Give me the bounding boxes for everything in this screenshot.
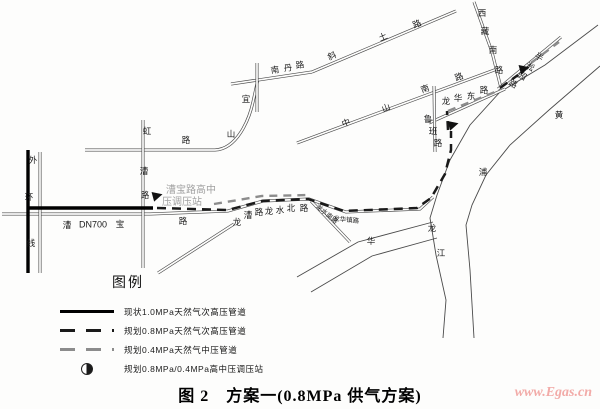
planned-04-pipeline-swatch xyxy=(60,348,114,351)
nandan-road-core xyxy=(231,72,312,84)
longhua-east-road-core xyxy=(429,89,505,123)
legend-row-planned-08: 规划0.8MPa天然气次高压管道 xyxy=(60,321,350,340)
regulator-station-symbol xyxy=(60,363,114,375)
figure-page: 外环线虹漕路宜山路南丹路斜土路中山南路漕DN700宝路龙漕路龙水北路龙水南路龙华… xyxy=(0,0,600,409)
legend-label: 现状1.0MPa天然气次高压管道 xyxy=(124,306,246,318)
planned-0.4mpa-pipeline xyxy=(531,42,559,63)
planned-08-pipeline-swatch xyxy=(60,329,114,332)
luban-road-core xyxy=(434,86,435,152)
figure-caption: 图 2 方案一(0.8MPa 供气方案) xyxy=(0,382,600,406)
huangpu-river-bank-1 xyxy=(430,25,598,338)
caobao-road-station xyxy=(152,189,164,201)
watermark: www.Egas.cn xyxy=(515,385,592,401)
legend-label: 规划0.4MPa天然气中压管道 xyxy=(124,344,237,356)
luban-road-station xyxy=(448,118,460,130)
legend-row-station: 规划0.8MPa/0.4MPa高中压调压站 xyxy=(60,359,350,378)
legend-label: 规划0.8MPa/0.4MPa高中压调压站 xyxy=(124,363,263,375)
southwest-branch-road-core xyxy=(158,224,234,273)
yishan-road-core xyxy=(85,79,258,150)
bansongyuan-road-core xyxy=(498,37,561,89)
xietu-road-core xyxy=(312,11,456,72)
existing-pipeline-swatch xyxy=(60,310,114,313)
legend-label: 规划0.8MPa天然气次高压管道 xyxy=(124,325,246,337)
legend-row-existing: 现状1.0MPa天然气次高压管道 xyxy=(60,302,350,321)
planned-0.8mpa-pipeline xyxy=(447,111,448,130)
yishan-road xyxy=(85,79,258,150)
legend-heading: 图例 xyxy=(112,272,350,292)
creek-bank-1 xyxy=(297,222,433,277)
legend-row-planned-04: 规划0.4MPa天然气中压管道 xyxy=(60,340,350,359)
legend: 图例 现状1.0MPa天然气次高压管道 规划0.8MPa天然气次高压管道 规划0… xyxy=(60,272,350,378)
